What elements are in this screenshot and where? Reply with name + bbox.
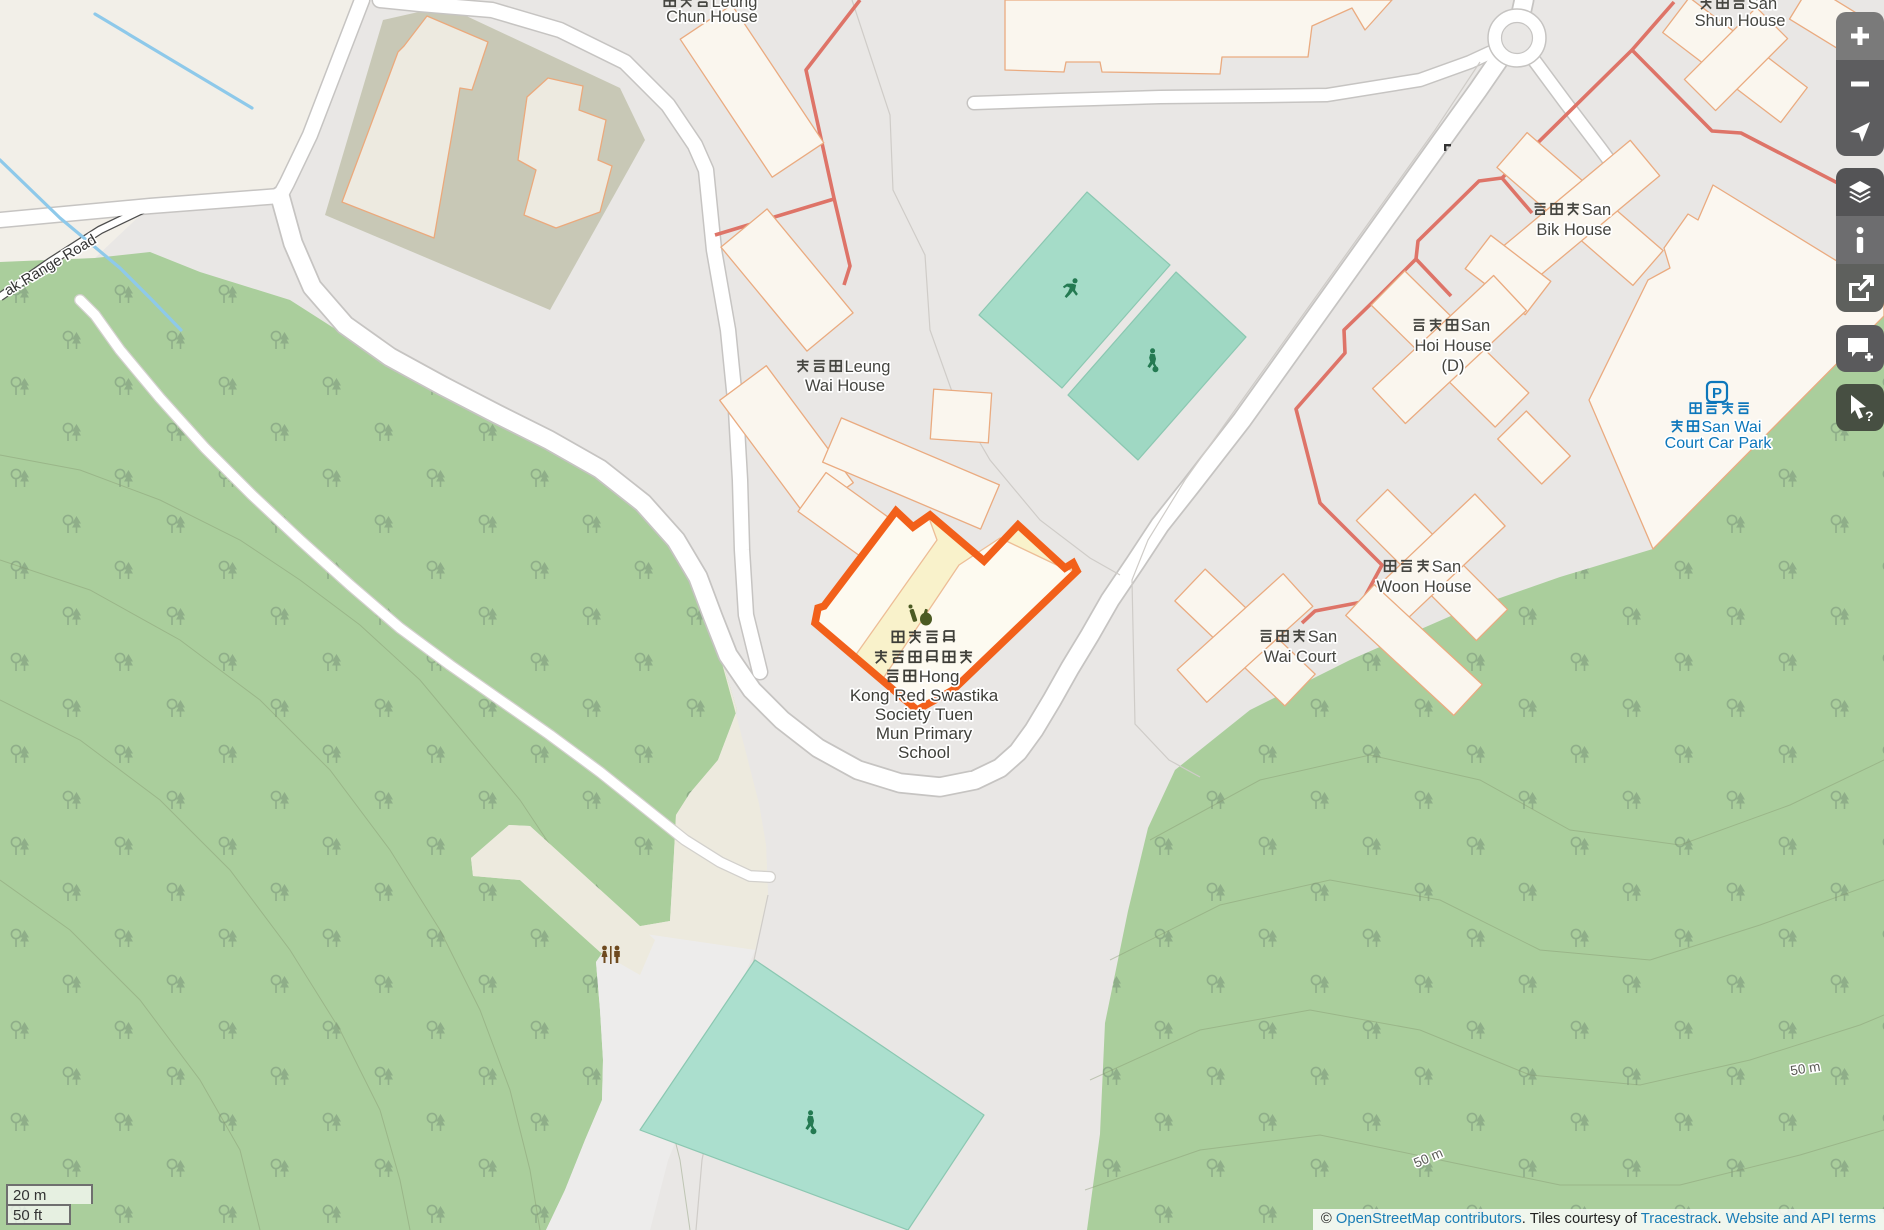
svg-text:Hong: Hong [919, 667, 960, 686]
svg-text:Kong Red Swastika: Kong Red Swastika [850, 686, 999, 705]
svg-text:Chun House: Chun House [666, 8, 758, 26]
svg-text:Woon House: Woon House [1376, 578, 1471, 596]
svg-text:San: San [1461, 317, 1490, 335]
svg-text:San: San [1582, 201, 1611, 219]
svg-text:Wai House: Wai House [805, 377, 885, 395]
svg-text:Society Tuen: Society Tuen [875, 705, 973, 724]
svg-text:Wai Court: Wai Court [1264, 648, 1337, 666]
svg-text:Shun House: Shun House [1695, 12, 1786, 30]
svg-text:(D): (D) [1442, 357, 1465, 375]
svg-text:P: P [1712, 385, 1722, 402]
svg-text:San: San [1308, 628, 1337, 646]
svg-text:Leung: Leung [845, 358, 891, 376]
svg-text:?: ? [1865, 408, 1874, 423]
svg-text:San Wai: San Wai [1702, 419, 1762, 436]
svg-text:Hoi House: Hoi House [1414, 337, 1491, 355]
svg-text:Mun Primary: Mun Primary [876, 724, 973, 743]
svg-text:Bik House: Bik House [1536, 221, 1611, 239]
svg-text:San: San [1432, 558, 1461, 576]
svg-text:School: School [898, 743, 950, 762]
svg-text:Court Car Park: Court Car Park [1665, 435, 1773, 452]
